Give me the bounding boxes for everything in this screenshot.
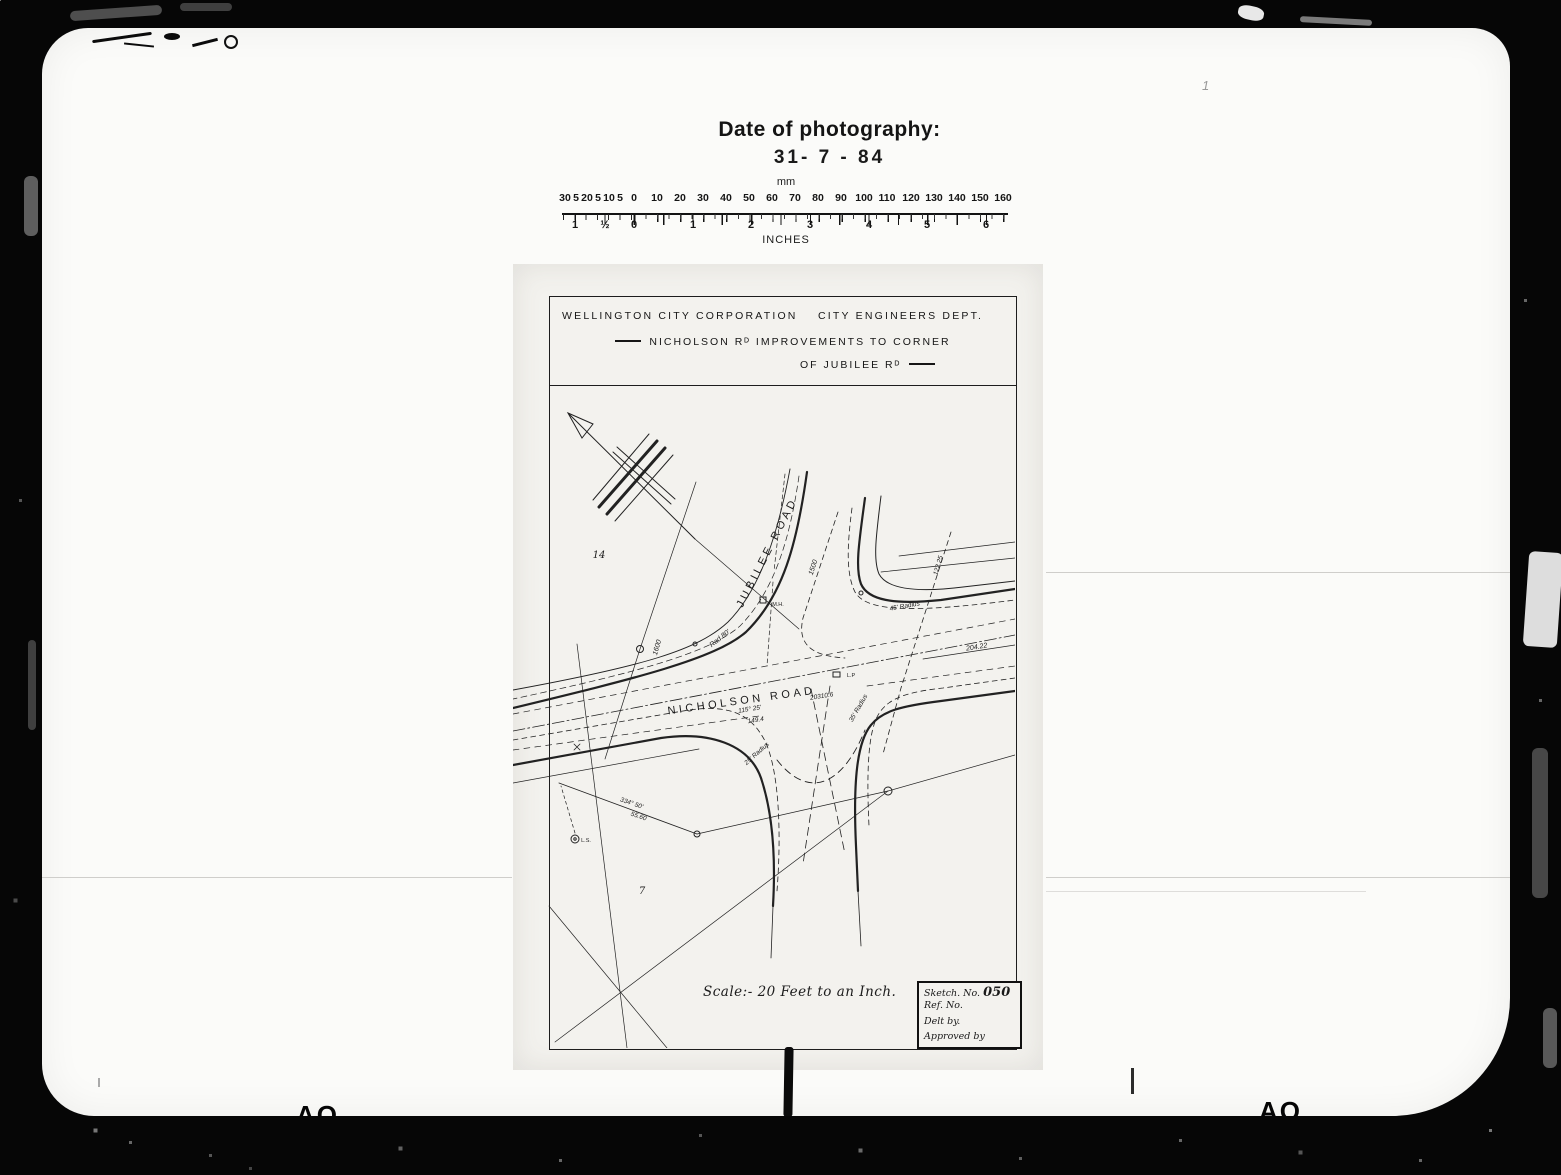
- date-of-photography-label: Date of photography:: [642, 118, 1017, 142]
- ruler-mm-tick-label: 5: [617, 192, 623, 204]
- ruler-mm-tick-label: 160: [994, 192, 1012, 204]
- ruler-mm-tick-label: 5: [573, 192, 579, 204]
- ruler-mm-tick-label: 50: [743, 192, 755, 204]
- film-streak: [180, 3, 232, 11]
- ruler-mm-tick-label: 20: [674, 192, 686, 204]
- approved-by-label: Approved by: [924, 1031, 985, 1042]
- ruler-mm-tick-label: 20: [581, 192, 593, 204]
- scan-mark: [92, 32, 152, 43]
- film-streak: [70, 5, 162, 21]
- delt-by-label: Delt by.: [924, 1016, 960, 1027]
- parcel-7-label: 7: [639, 886, 646, 897]
- stray-mark: [98, 1078, 100, 1087]
- drawing-frame-border: WELLINGTON CITY CORPORATION CITY ENGINEE…: [549, 296, 1017, 1050]
- title-subject-line2: OF JUBILEE Rᴰ: [800, 359, 935, 371]
- date-of-photography-value: 31- 7 - 84: [642, 147, 1017, 169]
- ruler-inch-tick-label: 3: [807, 219, 813, 231]
- ruler-mm-tick-label: 120: [902, 192, 920, 204]
- ruler-mm-tick-label: 90: [835, 192, 847, 204]
- title-subject-line2-text: OF JUBILEE Rᴰ: [800, 359, 901, 371]
- ruler-inch-tick-label: 0: [631, 219, 637, 231]
- photo-page: Date of photography: 31- 7 - 84 mm 30 5 …: [42, 28, 1510, 1116]
- frame-letter-ao: AO: [1259, 1096, 1302, 1116]
- ruler-mm-tick-label: 5: [595, 192, 601, 204]
- ruler-inch-tick-label: 1: [690, 219, 696, 231]
- ruler-mm-tick-label: 10: [651, 192, 663, 204]
- registration-tick: [1131, 1068, 1134, 1094]
- stray-mark: 1: [1202, 78, 1209, 93]
- rad-80-label: Rad 80': [708, 628, 732, 649]
- ruler-mm-label: mm: [560, 176, 1012, 188]
- scale-note: Scale:- 20 Feet to an Inch.: [703, 984, 923, 1000]
- ruler-inch-tick-label: 1: [572, 219, 578, 231]
- ruler-mm-tick-label: 60: [766, 192, 778, 204]
- dim-1600-label: 1600: [652, 639, 663, 656]
- sketch-no-label: Sketch. No.: [924, 988, 980, 999]
- title-block: WELLINGTON CITY CORPORATION CITY ENGINEE…: [550, 297, 1016, 386]
- film-streak: [1523, 551, 1561, 648]
- plan-map: JUBILEE ROAD NICHOLSON ROAD 14 7 Rad 80'…: [513, 386, 1015, 1048]
- ruler-mm-tick-label: 80: [812, 192, 824, 204]
- manhole-label: M.H.: [772, 602, 784, 608]
- survey-station-label: L.S.: [581, 838, 591, 844]
- ruler-inch-tick-label: 4: [866, 219, 872, 231]
- scan-mark: [164, 33, 180, 40]
- frame-letter-ao: AO: [1459, 1092, 1502, 1116]
- ruler-inch-tick-label: 2: [748, 219, 754, 231]
- scan-mark: [224, 35, 238, 49]
- drawing-sheet: WELLINGTON CITY CORPORATION CITY ENGINEE…: [513, 264, 1043, 1070]
- title-subject-line1: NICHOLSON Rᴰ IMPROVEMENTS TO CORNER: [550, 336, 1016, 348]
- survey-station-symbol: [571, 835, 579, 843]
- film-streak: [1543, 1008, 1557, 1068]
- survey-lines: [549, 482, 1015, 1048]
- lamp-post-label: L.P: [847, 673, 856, 679]
- proposed-kerb-dashed-lines: [513, 474, 1015, 891]
- scratch-line: [1046, 877, 1510, 878]
- radius-35-label: 35' Radius: [848, 693, 870, 724]
- sketch-no-value: 050: [983, 985, 1010, 1000]
- dist-149-label: 149.4: [747, 716, 765, 726]
- ruler: mm 30 5 20 5 10 5 0 10 20 30 40 50 60 70…: [560, 176, 1012, 252]
- radius-25-label: 25' Radius: [743, 741, 772, 768]
- ruler-inch-tick-label: 6: [983, 219, 989, 231]
- ruler-mm-tick-label: 0: [631, 192, 637, 204]
- sketch-no-row: Sketch. No. 050: [924, 985, 1010, 1000]
- ruler-mm-tick-label: 30: [697, 192, 709, 204]
- frame-letter-ao: AO: [296, 1100, 339, 1116]
- film-grain: [0, 0, 1, 1]
- film-streak: [1300, 16, 1372, 26]
- ruler-inches-label: INCHES: [560, 234, 1012, 246]
- scratch-line: [1046, 572, 1510, 573]
- scratch-line: [1046, 891, 1366, 892]
- film-streak: [24, 176, 38, 236]
- ruler-mm-tick-label: 110: [879, 192, 896, 204]
- bearing-334-label: 334° 50': [619, 795, 645, 811]
- ruler-mm-tick-label: 100: [855, 192, 873, 204]
- ref-no-label: Ref. No.: [924, 1000, 963, 1011]
- title-organisation: WELLINGTON CITY CORPORATION: [562, 310, 798, 322]
- scratch-line: [42, 877, 512, 878]
- film-streak: [1237, 3, 1265, 22]
- scan-mark: [124, 42, 154, 47]
- film-streak: [1532, 748, 1548, 898]
- ruler-mm-tick-label: 140: [948, 192, 966, 204]
- title-subject-line1-text: NICHOLSON Rᴰ IMPROVEMENTS TO CORNER: [649, 336, 950, 348]
- registration-mark: [783, 1047, 793, 1116]
- ruler-mm-tick-label: 150: [971, 192, 989, 204]
- dist-55-label: 55.60: [630, 811, 648, 823]
- ruler-inch-tick-label: ½: [600, 219, 609, 231]
- ruler-mm-tick-label: 70: [789, 192, 801, 204]
- ruler-mm-tick-label: 30: [559, 192, 571, 204]
- ruler-mm-tick-label: 130: [925, 192, 943, 204]
- ruler-inch-tick-label: 5: [924, 219, 930, 231]
- ruler-mm-tick-label: 10: [603, 192, 615, 204]
- film-scan-background: Date of photography: 31- 7 - 84 mm 30 5 …: [0, 0, 1561, 1175]
- scan-mark: [192, 38, 218, 47]
- title-department: CITY ENGINEERS DEPT.: [818, 310, 983, 322]
- parcel-14-label: 14: [593, 550, 606, 561]
- film-streak: [28, 640, 36, 730]
- lamp-post-symbol: [833, 672, 840, 677]
- sketch-info-box: Sketch. No. 050 Ref. No. Delt by. Approv…: [917, 981, 1022, 1049]
- ruler-mm-tick-label: 40: [720, 192, 732, 204]
